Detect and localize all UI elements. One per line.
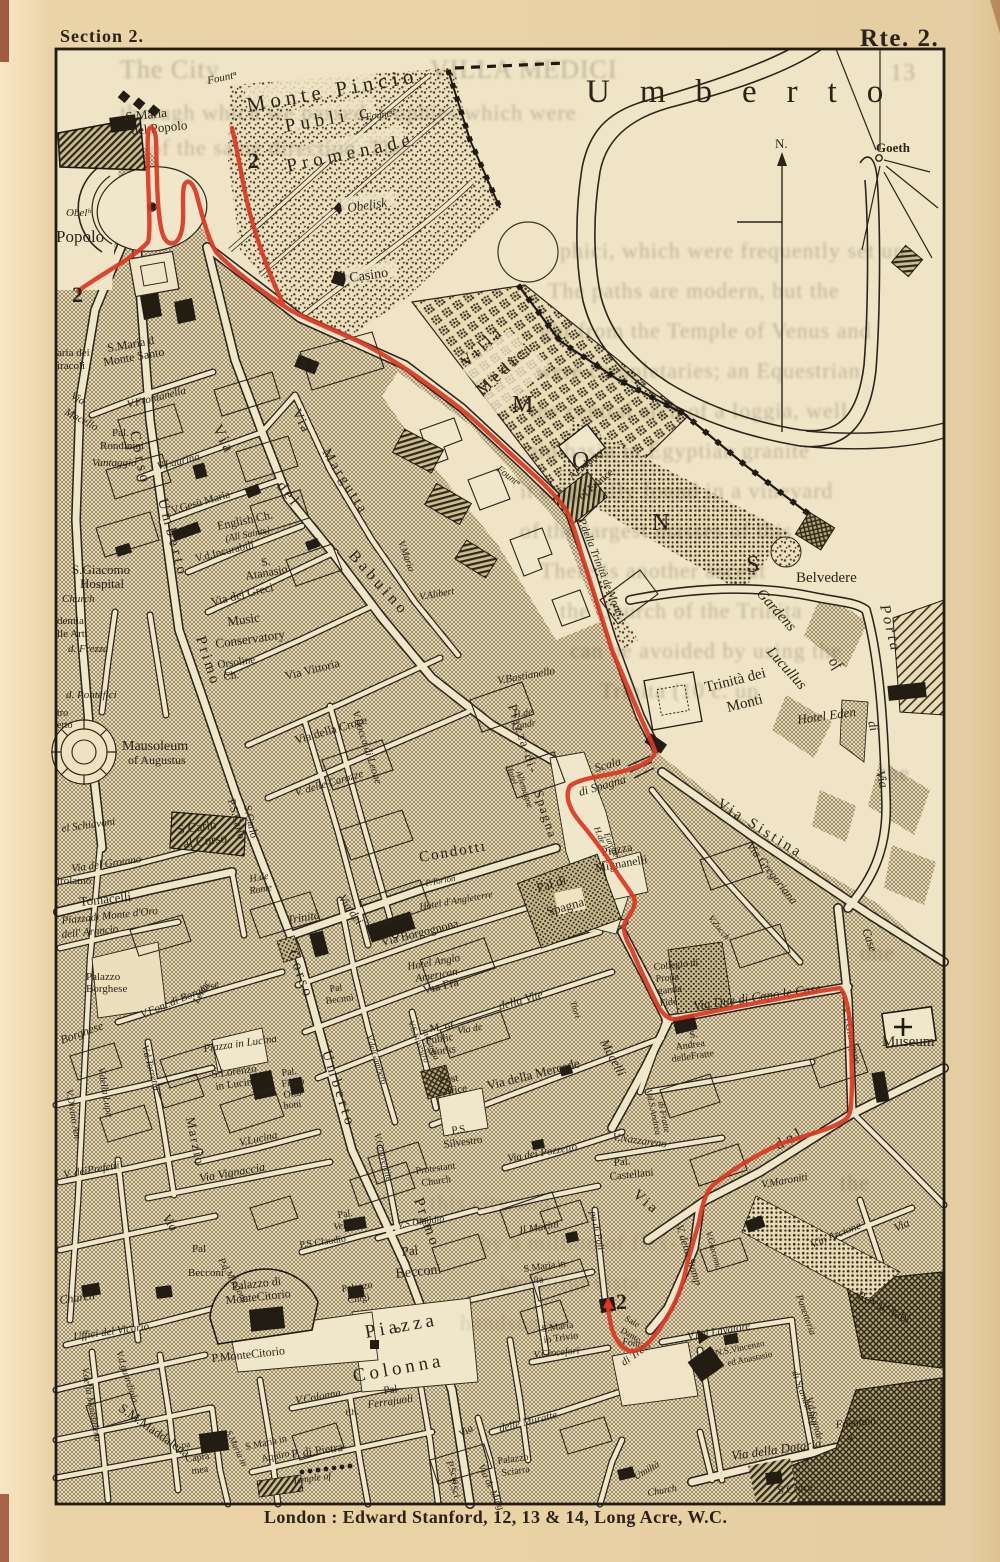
svg-text:the: the	[880, 760, 910, 785]
svg-text:of Augustus: of Augustus	[128, 753, 186, 767]
svg-text:it originally found in a viney: it originally found in a vineyard	[520, 478, 833, 503]
svg-text:the: the	[840, 1170, 870, 1195]
svg-text:d. Pontefici: d. Pontefici	[66, 689, 117, 701]
svg-text:Pal.: Pal.	[112, 427, 129, 439]
svg-text:Pal: Pal	[401, 1242, 419, 1259]
svg-text:Pal.: Pal.	[613, 1155, 631, 1169]
svg-text:2: 2	[72, 282, 83, 307]
svg-text:Belvedere: Belvedere	[796, 570, 857, 586]
svg-text:Vantaggio: Vantaggio	[92, 457, 137, 469]
svg-text:Goeth: Goeth	[876, 140, 911, 155]
svg-text:Rte. 2.: Rte. 2.	[860, 25, 939, 52]
svg-text:Museum: Museum	[882, 1034, 935, 1050]
svg-text:handsome: handsome	[460, 1310, 557, 1335]
svg-text:lle Arti: lle Arti	[57, 628, 88, 640]
svg-text:Hospital: Hospital	[80, 576, 124, 591]
svg-text:ain basin in Egyptian granite: ain basin in Egyptian granite	[528, 438, 810, 463]
svg-text:Borghese: Borghese	[86, 983, 127, 995]
svg-text:Church: Church	[62, 593, 95, 605]
svg-text:The City: The City	[120, 55, 220, 84]
svg-text:pa: pa	[181, 1439, 191, 1450]
svg-text:of the largest masses of this: of the largest masses of this	[520, 518, 792, 543]
svg-text:Obelʰ: Obelʰ	[66, 207, 91, 219]
svg-text:13: 13	[890, 60, 916, 86]
svg-text:the central arch of a loggia,: the central arch of a loggia, well	[530, 398, 848, 423]
svg-text:d. Frezza: d. Frezza	[68, 643, 109, 655]
svg-text:Fide: Fide	[659, 996, 678, 1009]
svg-text:erto: erto	[57, 720, 73, 731]
svg-text:Section 2.: Section 2.	[60, 26, 144, 46]
svg-text:of the same direction. The: of the same direction. The	[150, 135, 406, 160]
svg-text:through which we passed, troph: through which we passed, trophies which …	[120, 100, 576, 125]
svg-text:aria dei: aria dei	[57, 347, 90, 359]
svg-text:one: one	[860, 940, 895, 965]
svg-text:Palazzo: Palazzo	[86, 971, 121, 983]
svg-text:Mausoleum: Mausoleum	[122, 739, 188, 754]
svg-text:Ch.: Ch.	[345, 1406, 359, 1418]
svg-text:Ch.: Ch.	[223, 669, 240, 683]
svg-text:iracoli: iracoli	[57, 360, 85, 372]
svg-text:by a million of flex-: by a million of flex-	[480, 1230, 678, 1255]
svg-text:ght from the Temple of Venus a: ght from the Temple of Venus and	[540, 318, 871, 343]
svg-text:Umberto: Umberto	[586, 74, 913, 110]
svg-text:Becconi: Becconi	[188, 1267, 224, 1279]
svg-text:Popolo: Popolo	[56, 227, 104, 246]
svg-text:2: 2	[248, 148, 259, 173]
svg-text:were completaries; an Equestri: were completaries; an Equestrian	[536, 358, 861, 383]
svg-text:S.Giacomo: S.Giacomo	[72, 562, 130, 577]
svg-text:phici, which were frequently s: phici, which were frequently set up	[560, 238, 905, 263]
svg-text:irolamo: irolamo	[57, 875, 92, 887]
svg-text:Rondinini: Rondinini	[100, 440, 144, 452]
svg-text:this city and: this city and	[430, 1190, 551, 1215]
svg-text:The paths are modern, but the: The paths are modern, but the	[548, 278, 840, 303]
svg-text:2: 2	[616, 1289, 627, 1314]
svg-text:N.: N.	[775, 136, 788, 151]
svg-text:Pal: Pal	[192, 1243, 206, 1255]
svg-text:tro: tro	[57, 708, 68, 719]
svg-text:demia: demia	[57, 615, 84, 627]
svg-text:There is another ascent: There is another ascent	[540, 558, 766, 583]
svg-text:VILLA MEDICI: VILLA MEDICI	[430, 55, 617, 84]
svg-text:London : Edward Stanford, 12,: London : Edward Stanford, 12, 13 & 14, L…	[264, 1507, 727, 1527]
